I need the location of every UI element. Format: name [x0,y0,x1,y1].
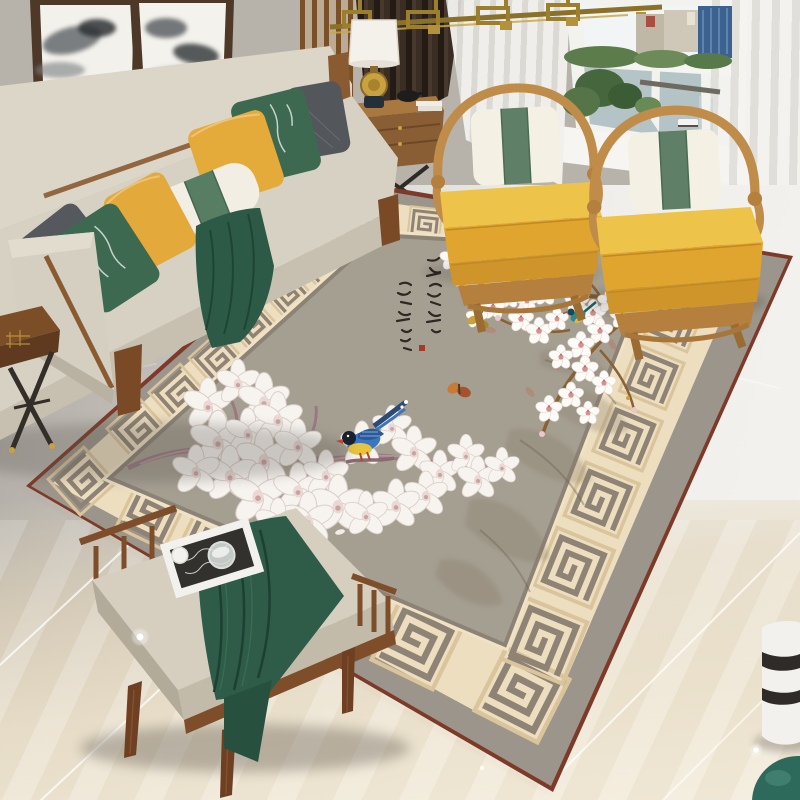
teal-sphere [752,756,800,800]
ceramic-stool [754,621,800,752]
sofa-leg [114,344,142,416]
book-stack [416,101,442,106]
table-lamp [349,20,399,108]
living-room-scene [0,0,800,800]
chair-pillow [627,129,722,212]
scene-artwork [0,0,800,800]
teapot-decor [397,90,419,102]
seal-stamp [419,345,425,351]
chair-pillow [470,106,562,187]
